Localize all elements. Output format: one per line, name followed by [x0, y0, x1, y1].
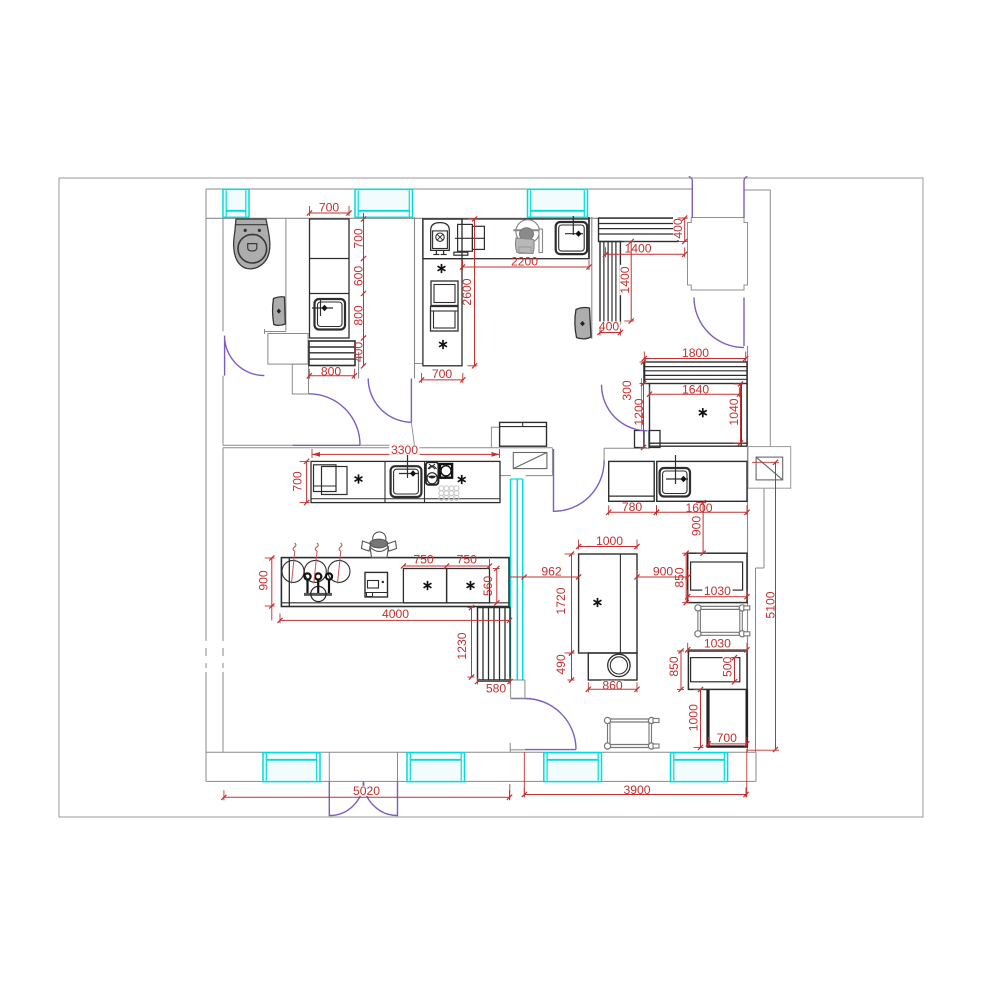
svg-text:800: 800 [321, 365, 342, 379]
svg-text:850: 850 [667, 656, 681, 677]
svg-text:962: 962 [541, 565, 562, 579]
svg-text:750: 750 [413, 553, 434, 567]
svg-text:1040: 1040 [727, 398, 741, 425]
svg-text:600: 600 [352, 266, 366, 287]
svg-text:1030: 1030 [704, 637, 731, 651]
svg-text:5020: 5020 [353, 784, 380, 798]
svg-text:2200: 2200 [511, 255, 538, 269]
svg-text:1000: 1000 [596, 534, 623, 548]
svg-text:700: 700 [432, 367, 453, 381]
svg-text:1230: 1230 [455, 632, 469, 659]
svg-text:860: 860 [602, 679, 623, 693]
svg-text:3900: 3900 [623, 783, 650, 797]
svg-text:1800: 1800 [682, 346, 709, 360]
svg-text:300: 300 [620, 380, 634, 401]
svg-text:580: 580 [486, 682, 507, 696]
svg-text:1720: 1720 [554, 587, 568, 614]
svg-text:1000: 1000 [686, 704, 700, 731]
svg-text:1400: 1400 [618, 266, 632, 293]
svg-text:700: 700 [291, 471, 305, 492]
svg-text:400: 400 [671, 218, 685, 239]
svg-text:800: 800 [352, 305, 366, 326]
svg-text:700: 700 [352, 228, 366, 249]
svg-text:700: 700 [717, 731, 738, 745]
svg-text:3300: 3300 [391, 443, 418, 457]
svg-text:700: 700 [319, 201, 340, 215]
svg-text:560: 560 [481, 576, 495, 597]
svg-text:4000: 4000 [382, 607, 409, 621]
svg-text:2600: 2600 [460, 278, 474, 305]
svg-text:750: 750 [457, 553, 478, 567]
svg-text:850: 850 [673, 567, 687, 588]
svg-text:900: 900 [257, 570, 271, 591]
svg-text:400: 400 [352, 342, 366, 363]
svg-text:490: 490 [554, 654, 568, 675]
svg-text:900: 900 [689, 516, 703, 537]
svg-text:900: 900 [653, 565, 674, 579]
svg-text:1030: 1030 [704, 584, 731, 598]
